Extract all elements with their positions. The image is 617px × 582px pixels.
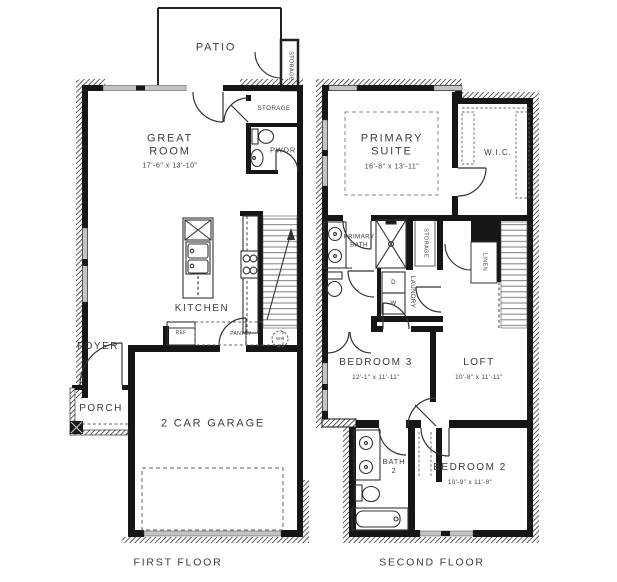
label-patio-storage: STORAGE xyxy=(286,51,293,81)
label-dryer: D xyxy=(391,279,396,287)
label-porch: PORCH xyxy=(79,403,123,415)
label-pantry: PANTRY xyxy=(230,331,252,337)
label-laundry: LAUNDRY xyxy=(408,276,416,308)
label-primary-suite-dims: 16'-8" x 13'-11" xyxy=(365,164,419,173)
label-wic: W.I.C. xyxy=(484,148,512,158)
stairs-second-floor xyxy=(499,222,527,328)
bath2-tub xyxy=(352,508,408,530)
label-bath2: BATH 2 xyxy=(379,457,409,475)
floor-plan-drawing xyxy=(0,0,617,582)
label-great-room: GREAT ROOM xyxy=(141,133,199,160)
label-bedroom2: BEDROOM 2 xyxy=(433,462,507,474)
label-foyer: FOYER xyxy=(77,341,119,353)
label-powder-room: PWDR xyxy=(270,145,296,154)
label-loft: LOFT xyxy=(463,357,495,369)
kitchen-island xyxy=(183,218,213,298)
first-floor-caption: FIRST FLOOR xyxy=(133,557,222,570)
label-linen: LINEN xyxy=(481,253,488,271)
label-washer: W xyxy=(390,300,396,308)
label-refrigerator: REF xyxy=(176,330,187,336)
label-bedroom3: BEDROOM 3 xyxy=(339,357,413,369)
label-storage-2f: STORAGE xyxy=(422,228,429,258)
primary-toilet xyxy=(327,272,342,297)
label-water-heater: WH xyxy=(276,336,284,342)
label-storage: STORAGE xyxy=(258,105,291,113)
label-great-room-dims: 17'-6" x 13'-10" xyxy=(143,163,198,172)
second-floor-doors xyxy=(328,168,486,456)
garage-door-setback xyxy=(142,468,283,530)
label-garage: 2 CAR GARAGE xyxy=(161,417,265,430)
label-bedroom2-dims: 10'-9" x 11'-8" xyxy=(448,479,492,487)
shower xyxy=(376,220,406,268)
bath2-vanity xyxy=(354,430,380,480)
label-kitchen: KITCHEN xyxy=(175,303,229,315)
bath2-toilet xyxy=(355,485,380,502)
label-bedroom3-dims: 12'-1" x 11'-11" xyxy=(352,374,400,382)
stove xyxy=(241,251,258,278)
patio-storage-door xyxy=(255,52,281,78)
label-primary-bath: PRIMARY BATH xyxy=(340,233,378,248)
stairs-first-floor xyxy=(263,216,297,328)
second-floor-caption: SECOND FLOOR xyxy=(379,557,485,570)
label-primary-suite: PRIMARY SUITE xyxy=(355,133,429,160)
powder-toilet xyxy=(252,129,274,144)
powder-sink xyxy=(251,150,263,167)
label-loft-dims: 10'-8" x 11'-11" xyxy=(455,374,503,382)
first-floor-plan xyxy=(70,8,309,543)
label-patio: PATIO xyxy=(196,41,236,54)
floor-plan-page: PATIO STORAGE STORAGE PWDR GREAT ROOM 17… xyxy=(0,0,617,582)
bedroom2-closet-shelves xyxy=(419,432,431,478)
step-wall xyxy=(322,419,356,427)
